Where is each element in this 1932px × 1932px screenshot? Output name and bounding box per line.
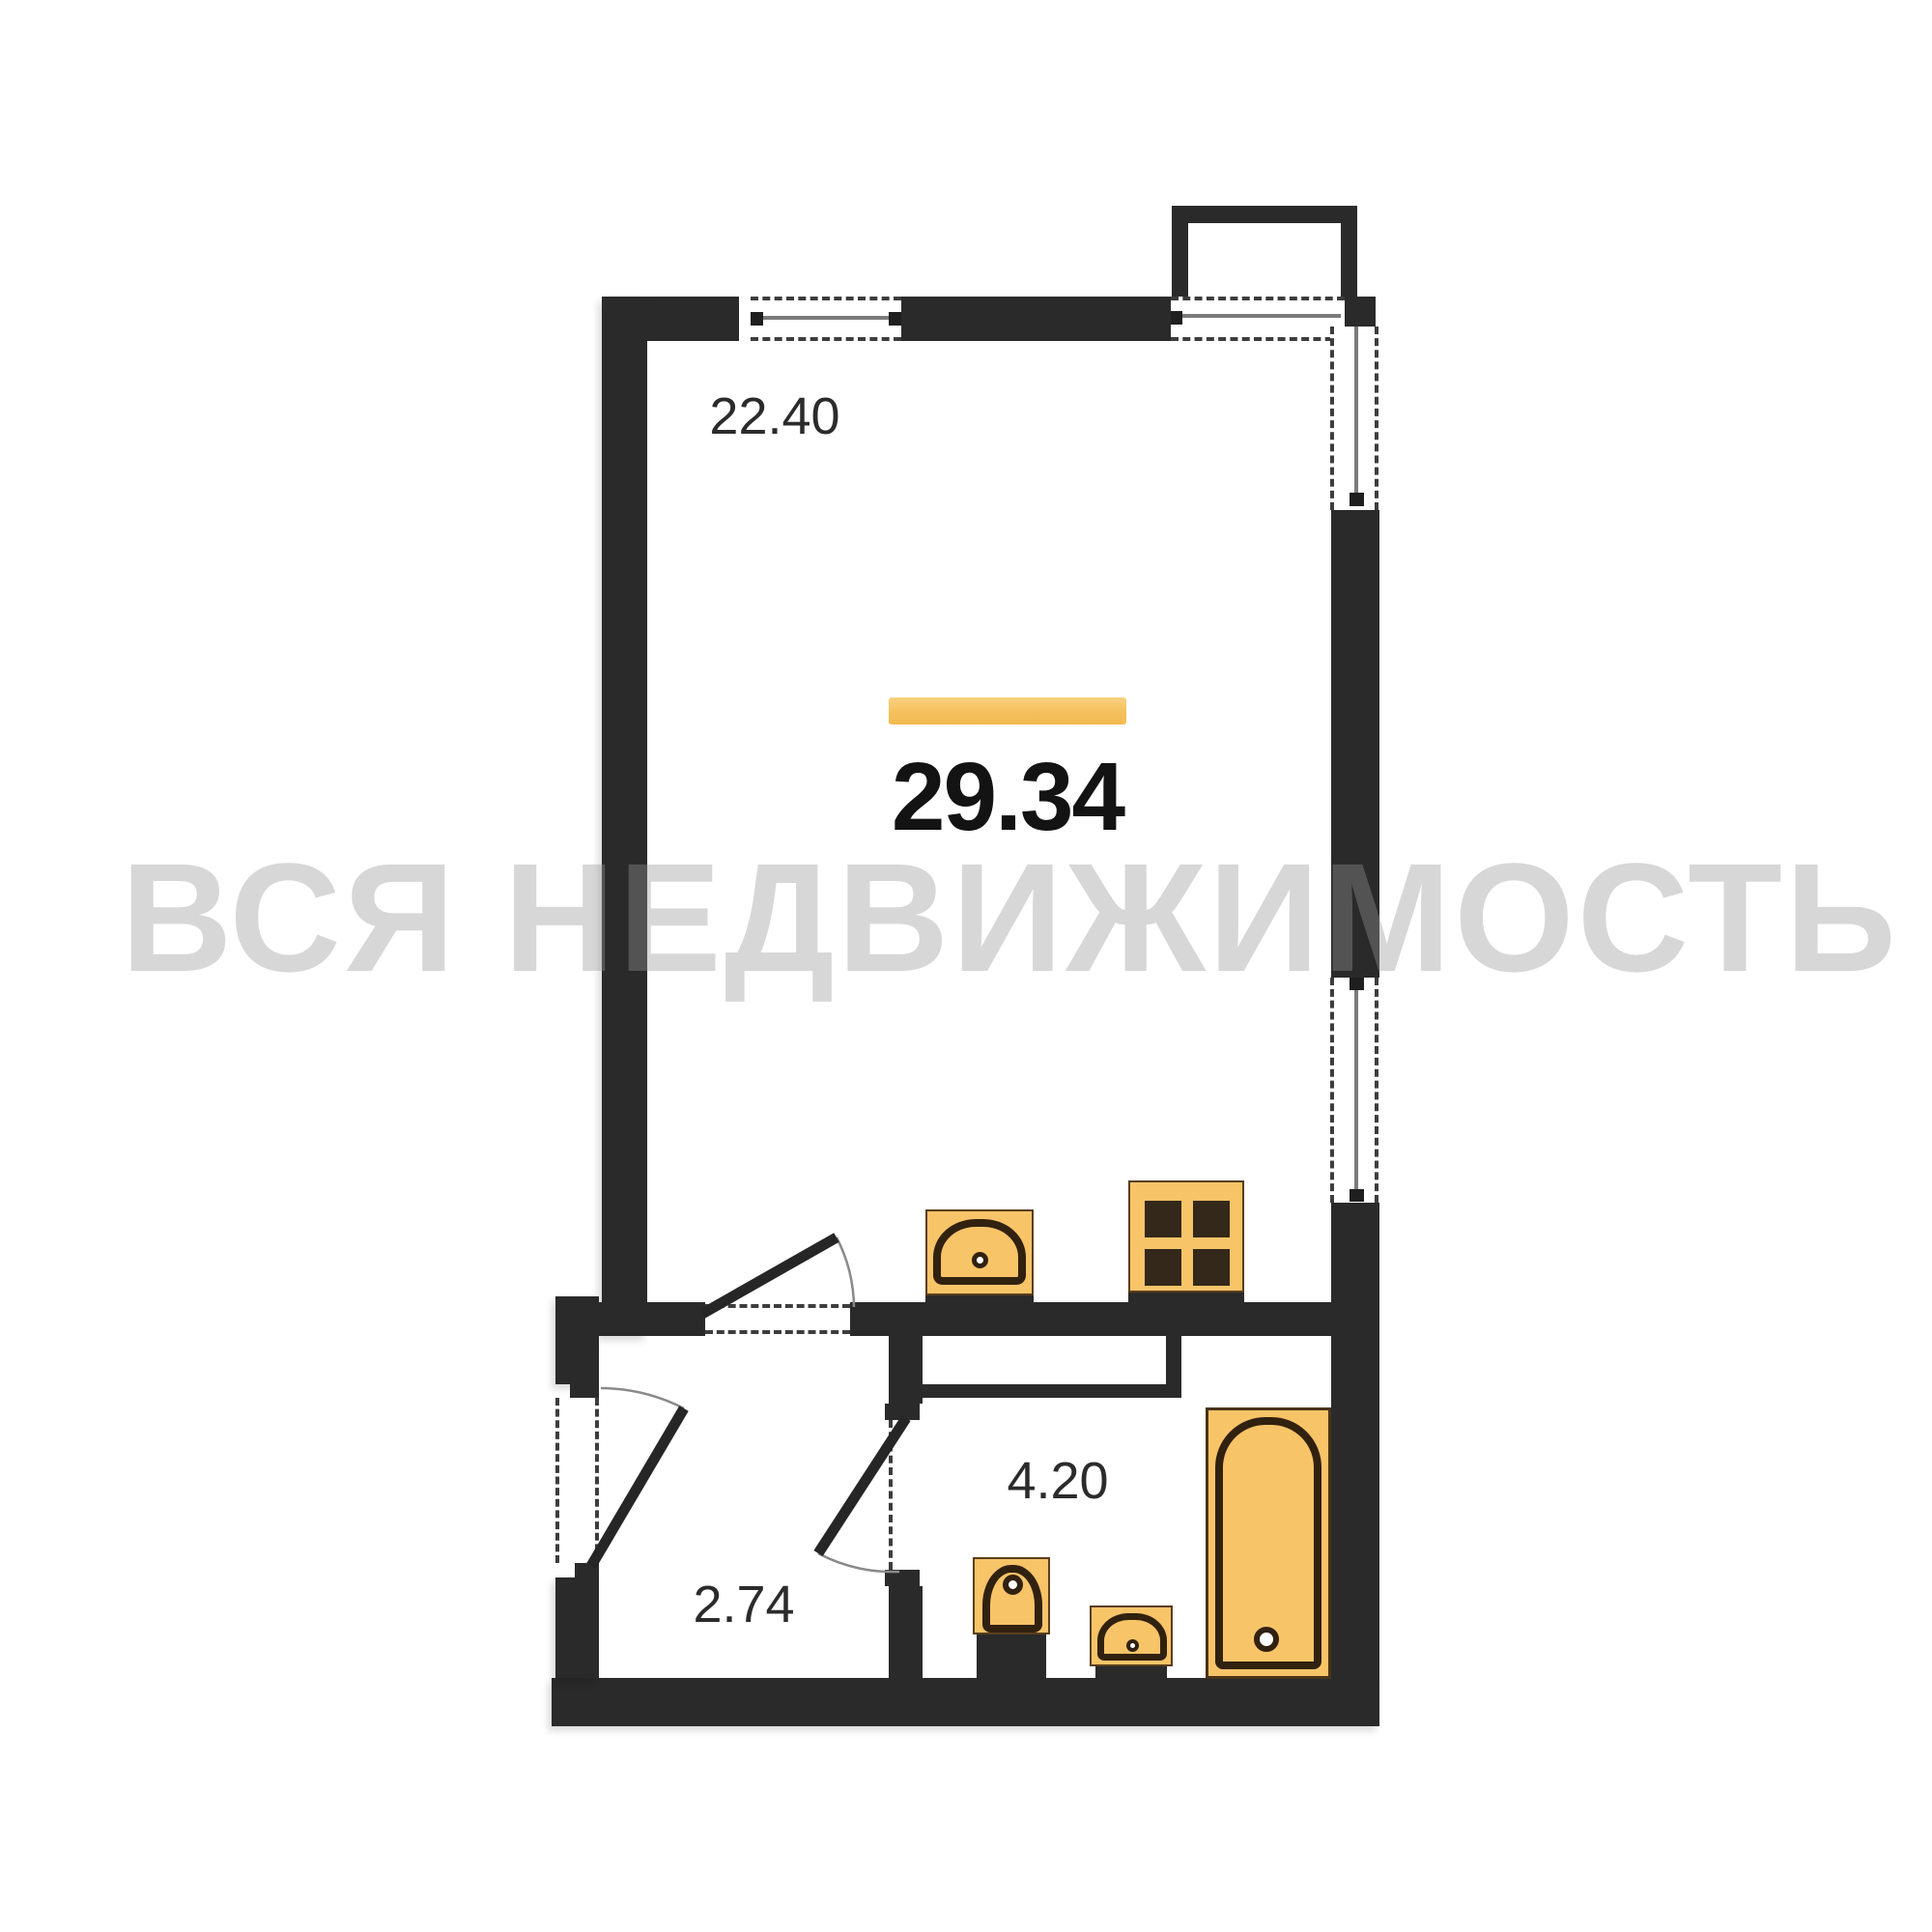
stove-base	[1128, 1293, 1244, 1306]
washbasin-base	[1095, 1666, 1167, 1679]
side-window-frame-bottom	[1350, 1189, 1364, 1202]
entry-door-opening	[555, 1398, 599, 1563]
wall-bath-divider-upper	[889, 1336, 923, 1404]
toilet-flush	[1003, 1575, 1023, 1595]
toilet-base	[977, 1634, 1046, 1678]
duct-niche-wall-right	[1166, 1336, 1181, 1391]
entry-door-leaf	[591, 1408, 684, 1566]
stove-burner	[1193, 1249, 1230, 1286]
balcony-window	[1171, 297, 1345, 341]
toilet	[973, 1557, 1050, 1634]
room-door-arc	[837, 1237, 854, 1307]
corner-window-frame-bottom	[1350, 493, 1364, 506]
stove	[1128, 1180, 1244, 1293]
bathroom-door-opening	[889, 1420, 921, 1570]
bath-door-jamb-bottom	[885, 1570, 920, 1586]
room-door-leaf	[702, 1237, 837, 1314]
total-area-bar	[889, 697, 1126, 724]
balcony-wall-left	[1172, 206, 1188, 298]
kitchen-sink-base	[925, 1295, 1034, 1307]
entry-door-arc	[601, 1388, 684, 1408]
washbasin	[1090, 1605, 1173, 1666]
wall-bottom	[552, 1678, 1379, 1726]
bathtub	[1206, 1407, 1331, 1679]
wall-right-lower	[1331, 1203, 1379, 1726]
stove-burner	[1145, 1249, 1181, 1286]
stove-burner	[1193, 1201, 1230, 1237]
top-window-frame-left	[751, 312, 763, 326]
side-window-glass-line	[1354, 990, 1358, 1189]
wall-top-right-corner	[1345, 297, 1376, 328]
wall-lower-left-lower	[555, 1577, 599, 1678]
corner-window-glass-line	[1354, 327, 1358, 495]
washbasin-drain	[1126, 1639, 1139, 1652]
top-window-glass-line	[762, 316, 890, 320]
wall-bath-divider-lower	[889, 1586, 923, 1678]
hallway-area-label: 2.74	[667, 1575, 821, 1634]
wall-top-mid-segment	[901, 297, 1171, 341]
balcony-wall-right	[1341, 206, 1357, 298]
wall-left	[602, 297, 647, 1336]
floor-plan: 22.40 29.34 4.20 2.74 ВСЯ НЕДВИЖИМОСТЬ	[0, 0, 1932, 1932]
washbasin-bowl	[1097, 1613, 1167, 1661]
watermark-text: ВСЯ НЕДВИЖИМОСТЬ	[121, 829, 1899, 1007]
top-window-frame-right	[889, 312, 901, 326]
bathtub-drain	[1254, 1627, 1279, 1652]
kitchen-sink	[925, 1209, 1034, 1295]
balcony-window-frame-left	[1171, 311, 1182, 325]
wall-room-divider-left	[555, 1302, 705, 1336]
balcony-wall-top	[1172, 206, 1357, 223]
stove-burner	[1145, 1201, 1181, 1237]
kitchen-sink-drain	[972, 1252, 988, 1268]
room-door-opening	[705, 1304, 850, 1334]
corner-window-side	[1330, 327, 1378, 510]
side-window	[1330, 978, 1378, 1203]
entry-door-jamb-bottom	[575, 1563, 599, 1577]
living-room-area-label: 22.40	[649, 386, 900, 446]
wall-room-divider-right	[850, 1302, 1331, 1336]
balcony-window-glass-line	[1179, 314, 1341, 318]
entry-door-jamb-top	[570, 1384, 599, 1398]
bathroom-area-label: 4.20	[976, 1451, 1140, 1511]
top-window	[751, 297, 901, 341]
duct-niche-wall-bottom	[920, 1384, 1181, 1398]
bath-door-jamb-top	[885, 1404, 920, 1420]
